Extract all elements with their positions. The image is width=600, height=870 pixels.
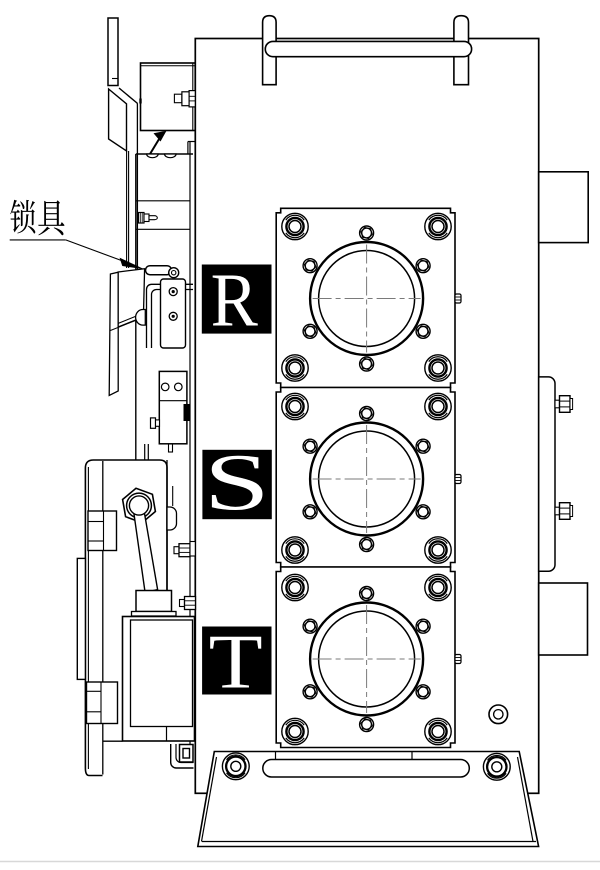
svg-text:R: R bbox=[211, 257, 259, 342]
svg-text:T: T bbox=[209, 619, 263, 704]
svg-text:S: S bbox=[204, 437, 270, 526]
